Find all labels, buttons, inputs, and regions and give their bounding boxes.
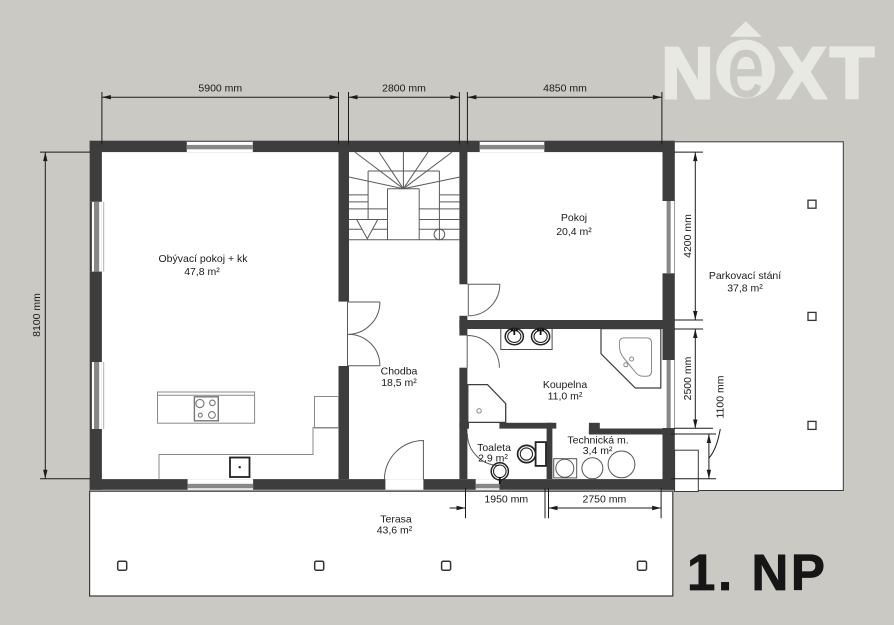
- svg-text:3,4 m²: 3,4 m²: [583, 445, 613, 457]
- svg-text:18,5 m²: 18,5 m²: [381, 377, 417, 389]
- svg-text:4200 mm: 4200 mm: [682, 214, 694, 258]
- svg-text:Parkovací stání: Parkovací stání: [709, 270, 781, 282]
- svg-text:2800 mm: 2800 mm: [382, 83, 426, 95]
- svg-text:X: X: [778, 34, 826, 114]
- svg-text:e: e: [728, 20, 764, 114]
- svg-text:2750 mm: 2750 mm: [583, 494, 627, 506]
- svg-text:37,8 m²: 37,8 m²: [727, 283, 763, 295]
- svg-text:Chodba: Chodba: [381, 366, 418, 378]
- svg-text:11,0 m²: 11,0 m²: [548, 391, 583, 403]
- svg-text:N: N: [662, 34, 714, 114]
- svg-text:43,6 m²: 43,6 m²: [377, 525, 413, 537]
- svg-text:5900 mm: 5900 mm: [198, 83, 242, 95]
- svg-text:1. NP: 1. NP: [687, 544, 828, 601]
- svg-text:8100 mm: 8100 mm: [31, 293, 43, 337]
- svg-text:Obývací pokoj + kk: Obývací pokoj + kk: [159, 253, 249, 265]
- svg-text:Koupelna: Koupelna: [543, 379, 588, 391]
- svg-text:2,9 m²: 2,9 m²: [478, 453, 508, 465]
- svg-text:T: T: [830, 34, 874, 114]
- svg-text:Pokoj: Pokoj: [561, 212, 587, 224]
- svg-text:20,4 m²: 20,4 m²: [556, 226, 592, 238]
- svg-text:1950 mm: 1950 mm: [484, 494, 528, 506]
- svg-text:2500 mm: 2500 mm: [682, 356, 694, 400]
- svg-text:4850 mm: 4850 mm: [543, 83, 587, 95]
- svg-text:47,8 m²: 47,8 m²: [184, 266, 220, 278]
- svg-text:1100 mm: 1100 mm: [715, 375, 727, 418]
